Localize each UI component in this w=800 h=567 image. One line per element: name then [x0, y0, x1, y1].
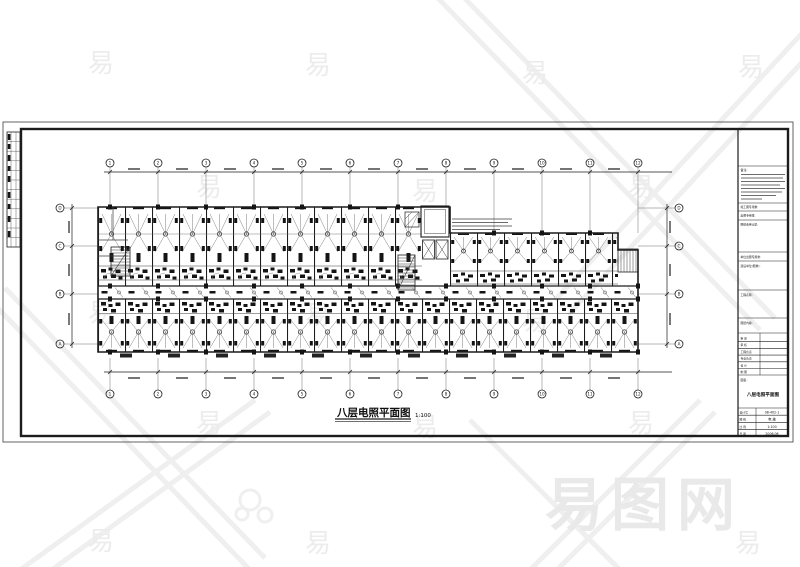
- svg-text:A: A: [678, 342, 681, 347]
- watermark-site-name: 易图网: [545, 471, 743, 539]
- svg-text:12: 12: [635, 161, 641, 166]
- axis-bubble: 9: [490, 159, 498, 167]
- svg-text:1: 1: [109, 392, 112, 397]
- svg-text:7: 7: [397, 161, 400, 166]
- top-rooms-left: [98, 207, 422, 286]
- axis-bubble: 12: [634, 390, 642, 398]
- notes-label: 备注:: [741, 167, 748, 172]
- info-value: 08-402-1: [765, 411, 779, 415]
- info-label: 图 别: [740, 418, 747, 422]
- svg-text:5: 5: [301, 392, 304, 397]
- client-label: 建设单位(图章):: [741, 264, 761, 268]
- svg-text:5: 5: [301, 161, 304, 166]
- watermark-glyph: 易: [738, 53, 764, 83]
- svg-text:8: 8: [445, 392, 448, 397]
- sheet-label: 图纸内容:: [741, 321, 753, 325]
- project-label: 工程名称:: [741, 293, 753, 297]
- svg-text:12: 12: [635, 392, 641, 397]
- svg-text:7: 7: [397, 392, 400, 397]
- svg-text:8: 8: [445, 161, 448, 166]
- svg-text:6: 6: [349, 161, 352, 166]
- name-label: 图名:: [741, 377, 748, 382]
- plan-note-lines: [452, 219, 512, 233]
- axis-bubble: 8: [442, 390, 450, 398]
- signature-row-label: 工程负责: [741, 350, 752, 354]
- svg-text:B: B: [59, 292, 62, 297]
- svg-text:3: 3: [205, 392, 208, 397]
- svg-text:2: 2: [157, 392, 160, 397]
- axis-bubble: 10: [538, 390, 546, 398]
- signature-row-label: 专业负责: [741, 357, 752, 361]
- axis-bubble: 10: [538, 159, 546, 167]
- axis-bubble: 2: [154, 159, 162, 167]
- corridor: [98, 286, 638, 299]
- watermark-glyph: 易: [196, 173, 222, 203]
- axis-bubble: 8: [442, 159, 450, 167]
- axis-bubble: 7: [394, 390, 402, 398]
- drawing-scale: 1:100: [415, 413, 431, 419]
- axis-bubble: 6: [346, 159, 354, 167]
- title-block-drawing-name: 八层电照平面图: [746, 391, 780, 398]
- revision-strip: [7, 132, 20, 247]
- axis-bubble: 4: [250, 159, 258, 167]
- watermark-glyph: 易: [628, 409, 654, 439]
- review-label: 图纸会审记录:: [741, 223, 759, 227]
- svg-text:4: 4: [253, 392, 256, 397]
- seal-label: 单位出图专用章:: [741, 255, 762, 259]
- cad-sheet-viewport: 易 易 易 易 易 易 易 易 易 易 易 易 易 易 易 易 易图网: [0, 0, 800, 567]
- axis-bubble: B: [675, 290, 683, 298]
- watermark-glyph: 易: [88, 527, 114, 557]
- svg-text:C: C: [678, 244, 681, 249]
- watermark-glyph: 易: [305, 51, 331, 81]
- signature-row-label: 设 计: [741, 363, 748, 367]
- svg-text:6: 6: [349, 392, 352, 397]
- svg-text:10: 10: [539, 392, 545, 397]
- axis-bubble: 4: [250, 390, 258, 398]
- svg-text:11: 11: [587, 161, 593, 166]
- axis-bubble: 11: [586, 390, 594, 398]
- svg-text:9: 9: [493, 392, 496, 397]
- axis-bubble: 9: [490, 390, 498, 398]
- axis-bubble: 5: [298, 390, 306, 398]
- watermark-glyph: 易: [305, 529, 331, 559]
- stamp-row2-label: 出图专用章:: [741, 214, 756, 218]
- svg-text:2: 2: [157, 161, 160, 166]
- axis-bubble: 3: [202, 159, 210, 167]
- info-label: 日 期: [740, 432, 747, 436]
- svg-text:4: 4: [253, 161, 256, 166]
- info-value: 电 施: [768, 417, 776, 422]
- svg-text:1: 1: [109, 161, 112, 166]
- axis-bubble: 3: [202, 390, 210, 398]
- info-label: 设计号: [740, 411, 749, 415]
- info-label: 比 例: [740, 425, 747, 429]
- svg-text:11: 11: [587, 392, 593, 397]
- axis-bubble: 11: [586, 159, 594, 167]
- floor-plan: [98, 206, 640, 356]
- svg-text:10: 10: [539, 161, 545, 166]
- svg-text:9: 9: [493, 161, 496, 166]
- watermark-glyph: 易: [88, 49, 114, 79]
- bottom-rooms: [98, 299, 638, 352]
- svg-text:3: 3: [205, 161, 208, 166]
- drawing-title: 八层电照平面图: [336, 406, 411, 419]
- axis-bubble: C: [56, 242, 64, 250]
- axis-bubble: B: [56, 290, 64, 298]
- watermark-glyph: 易: [522, 59, 548, 89]
- axis-bubble: 6: [346, 390, 354, 398]
- axis-bubble: 2: [154, 390, 162, 398]
- axis-bubble: 7: [394, 159, 402, 167]
- svg-text:C: C: [59, 244, 62, 249]
- title-block: 备注: 竣工图专用章: 出图专用章: 图纸会审记录: 单位出图专用章: 建设单位…: [738, 166, 788, 436]
- svg-text:D: D: [677, 206, 680, 211]
- axis-bubble: D: [675, 204, 683, 212]
- signature-row-label: 制 图: [741, 370, 748, 374]
- top-rooms-right: [450, 233, 618, 286]
- signature-row-label: 审 核: [741, 343, 748, 347]
- watermark-glyph: 易: [628, 173, 654, 203]
- svg-text:B: B: [678, 292, 681, 297]
- info-value: 2006.06: [765, 432, 778, 436]
- axis-bubble: A: [675, 340, 683, 348]
- cad-drawing: 易 易 易 易 易 易 易 易 易 易 易 易 易 易 易 易 易图网: [0, 0, 800, 567]
- svg-text:D: D: [58, 206, 61, 211]
- stamp-row1-label: 竣工图专用章:: [741, 205, 759, 209]
- axis-bubble: D: [56, 204, 64, 212]
- axis-grid-bottom: 1 2 3 4 5 6 7 8 9 10 11 12: [104, 358, 672, 398]
- signature-row-label: 审 定: [741, 337, 748, 341]
- svg-text:A: A: [59, 342, 62, 347]
- info-value: 1:100: [767, 425, 776, 429]
- watermark-glyph: 易: [412, 177, 438, 207]
- axis-bubble: 12: [634, 159, 642, 167]
- watermark-glyph: 易: [196, 409, 222, 439]
- axis-bubble: 5: [298, 159, 306, 167]
- axis-bubble: 1: [106, 159, 114, 167]
